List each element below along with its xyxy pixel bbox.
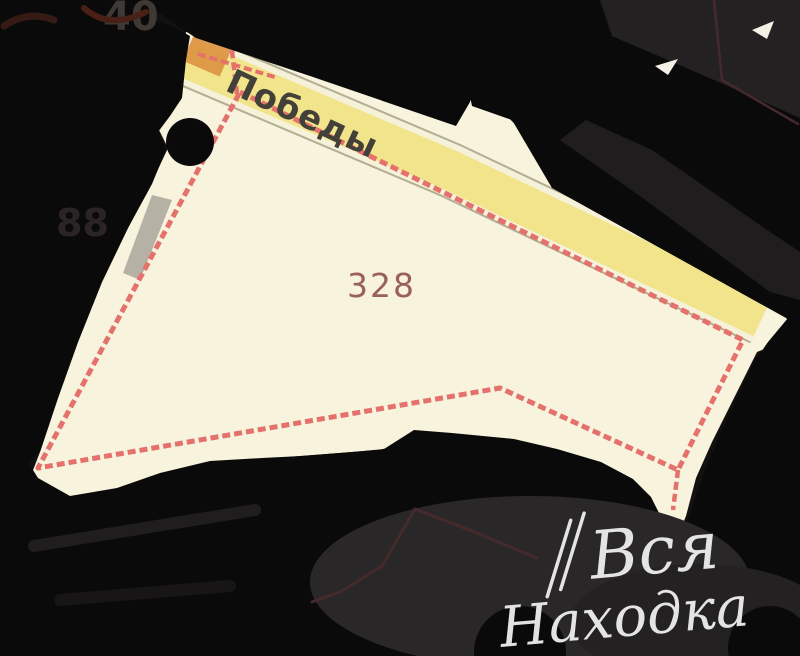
map-viewport[interactable]: Победы 328 40 88 Вся	[0, 0, 800, 656]
house-number-88: 88	[56, 201, 109, 245]
road-crossing-patch	[189, 46, 226, 62]
parcel-number-label: 328	[347, 266, 416, 305]
mask-bite-notch	[166, 118, 214, 166]
